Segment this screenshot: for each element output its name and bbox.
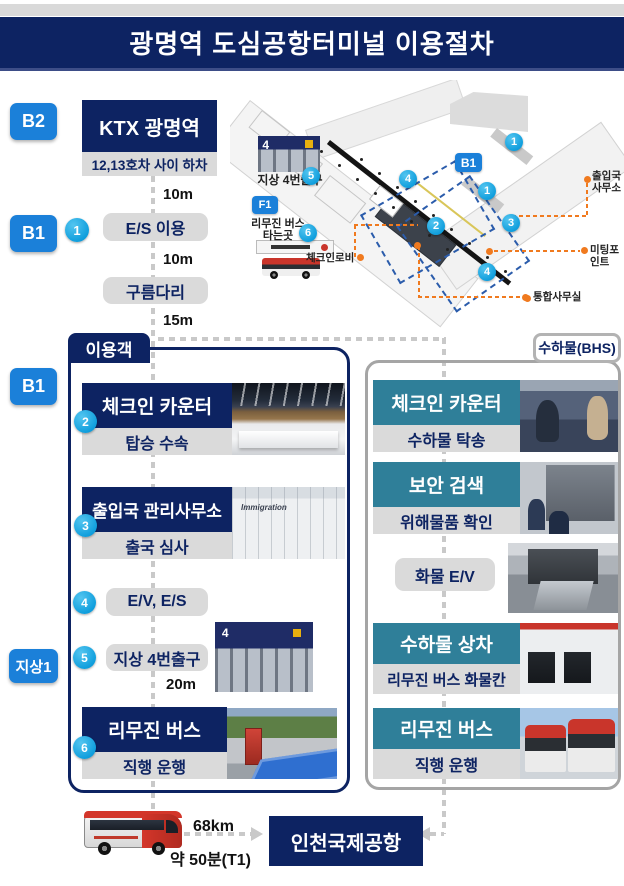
- step5-box: 지상 4번출구: [106, 644, 208, 671]
- distance-label-2: 10m: [163, 251, 193, 268]
- floor-badge-b1-upper: B1: [10, 215, 57, 252]
- step-marker-4: 4: [73, 591, 96, 614]
- limo-bus-wheel: [98, 842, 111, 855]
- bridge-box: 구름다리: [103, 277, 208, 304]
- bhs-step1-title-box: 체크인 카운터: [373, 380, 520, 425]
- map-connector: [354, 224, 418, 226]
- bhs-step2-photo: [520, 462, 618, 534]
- map-marker-4: 4: [399, 170, 417, 188]
- map-marker-1: 1: [505, 133, 523, 151]
- bhs-step1-sub-box: 수하물 탁송: [373, 425, 520, 452]
- ktx-station-box: KTX 광명역: [82, 100, 217, 152]
- bhs-step5-title-box: 리무진 버스: [373, 708, 520, 749]
- map-marker-3: 3: [502, 214, 520, 232]
- step6-photo: [227, 708, 337, 779]
- map-walkway: [305, 80, 467, 160]
- map-immigration-office-label: 출입국 사무소: [592, 170, 621, 194]
- step5-photo: 4: [215, 622, 313, 692]
- bhs-step2-sub-box: 위해물품 확인: [373, 507, 520, 534]
- flow-line-branch: [158, 337, 446, 341]
- step-marker-3: 3: [74, 514, 97, 537]
- map-connector: [512, 215, 588, 217]
- distance-label-3: 15m: [163, 312, 193, 329]
- map-lobby-dot: [357, 254, 364, 261]
- exit4-sign-number: 4: [262, 138, 269, 152]
- flow-line-bottom-right: [430, 832, 444, 836]
- bhs-step3-box: 화물 E/V: [395, 558, 495, 591]
- floor-badge-b1-lower: B1: [10, 368, 57, 405]
- map-plaza: [450, 92, 528, 132]
- step-marker-5: 5: [73, 646, 96, 669]
- bhs-step5-sub-box: 직행 운행: [373, 749, 520, 779]
- map-point-immigration: [584, 176, 591, 183]
- map-office-label-dot: [524, 295, 531, 302]
- alight-box: 12,13호차 사이 하차: [82, 152, 217, 176]
- bus-wheel: [270, 271, 278, 279]
- map-floor-f1-badge: F1: [252, 196, 278, 214]
- step6-title-box: 리무진 버스: [82, 707, 227, 752]
- bhs-step3-photo: [508, 543, 618, 613]
- distance-label-1: 10m: [163, 186, 193, 203]
- infographic-page: 광명역 도심공항터미널 이용절차: [0, 0, 624, 886]
- sign-red-dot: [321, 244, 328, 251]
- map-lobby-label: 체크인로비: [306, 252, 360, 264]
- step-marker-2: 2: [74, 410, 97, 433]
- map-floor-f1-label: F1: [259, 199, 272, 211]
- page-title: 광명역 도심공항터미널 이용절차: [129, 24, 494, 61]
- exit4-sign-number: 4: [222, 626, 229, 640]
- step6-sub-box: 직행 운행: [82, 752, 227, 779]
- map-point-lobby: [414, 242, 421, 249]
- map-floor-b1-badge: B1: [455, 153, 482, 172]
- flow-arrow-right-icon: [251, 827, 263, 841]
- map-marker-4b: 4: [478, 263, 496, 281]
- bus-duration-label: 약 50분(T1): [170, 846, 251, 870]
- step2-photo: [232, 383, 345, 455]
- baggage-header: 수하물(BHS): [533, 333, 621, 363]
- map-marker-1b: 1: [478, 182, 496, 200]
- step2-title-box: 체크인 카운터: [82, 383, 232, 428]
- step-marker-1: 1: [65, 218, 89, 242]
- map-marker-6: 6: [299, 224, 317, 242]
- bhs-step4-photo: [520, 623, 618, 694]
- escalator-box: E/S 이용: [103, 213, 208, 241]
- top-strip: [0, 2, 624, 16]
- station-map: B1 F1 1 1 2 3 4 4 5 6 4 지상 4번출구 리무진 버스 타…: [230, 80, 624, 330]
- map-connector: [494, 250, 580, 252]
- limo-bus-stripe: [94, 836, 138, 839]
- step4-box: E/V, E/S: [106, 588, 208, 616]
- map-connector: [586, 183, 588, 215]
- map-meeting-point-label: 미팅포인트: [590, 244, 624, 268]
- map-floor-b1-label: B1: [461, 156, 476, 170]
- immigration-sign-text: Immigration: [241, 503, 287, 512]
- sign-text-strip: [271, 245, 311, 250]
- floor-badge-ground: 지상1: [9, 649, 58, 683]
- destination-box: 인천국제공항: [269, 816, 423, 866]
- bhs-step1-photo: [520, 380, 618, 452]
- step3-sub-box: 출국 심사: [82, 532, 232, 559]
- distance-label-4: 20m: [166, 676, 196, 693]
- step3-title-box: 출입국 관리사무소: [82, 487, 232, 532]
- passenger-header: 이용객: [68, 333, 150, 363]
- step2-sub-box: 탑승 수속: [82, 428, 232, 455]
- map-office-label: 통합사무실: [533, 291, 581, 303]
- map-point-meeting: [486, 248, 493, 255]
- map-connector: [418, 246, 420, 298]
- bus-wheel: [302, 271, 310, 279]
- step3-photo: Immigration: [232, 487, 345, 559]
- bhs-step2-title-box: 보안 검색: [373, 462, 520, 507]
- limo-bus-windows: [90, 820, 164, 830]
- map-connector: [418, 296, 522, 298]
- map-marker-2: 2: [427, 217, 445, 235]
- map-point-meeting-label: [581, 247, 588, 254]
- bus-distance-label: 68km: [193, 818, 234, 836]
- map-marker-5: 5: [302, 167, 320, 185]
- limo-bus-wheel: [152, 842, 165, 855]
- bhs-step4-sub-box: 리무진 버스 화물칸: [373, 664, 520, 694]
- map-pillar-dots: [320, 150, 323, 153]
- bhs-step5-photo: [520, 708, 618, 779]
- floor-badge-b2: B2: [10, 103, 57, 140]
- step-marker-6: 6: [73, 736, 96, 759]
- title-bar: 광명역 도심공항터미널 이용절차: [0, 17, 624, 71]
- bhs-step4-title-box: 수하물 상차: [373, 623, 520, 664]
